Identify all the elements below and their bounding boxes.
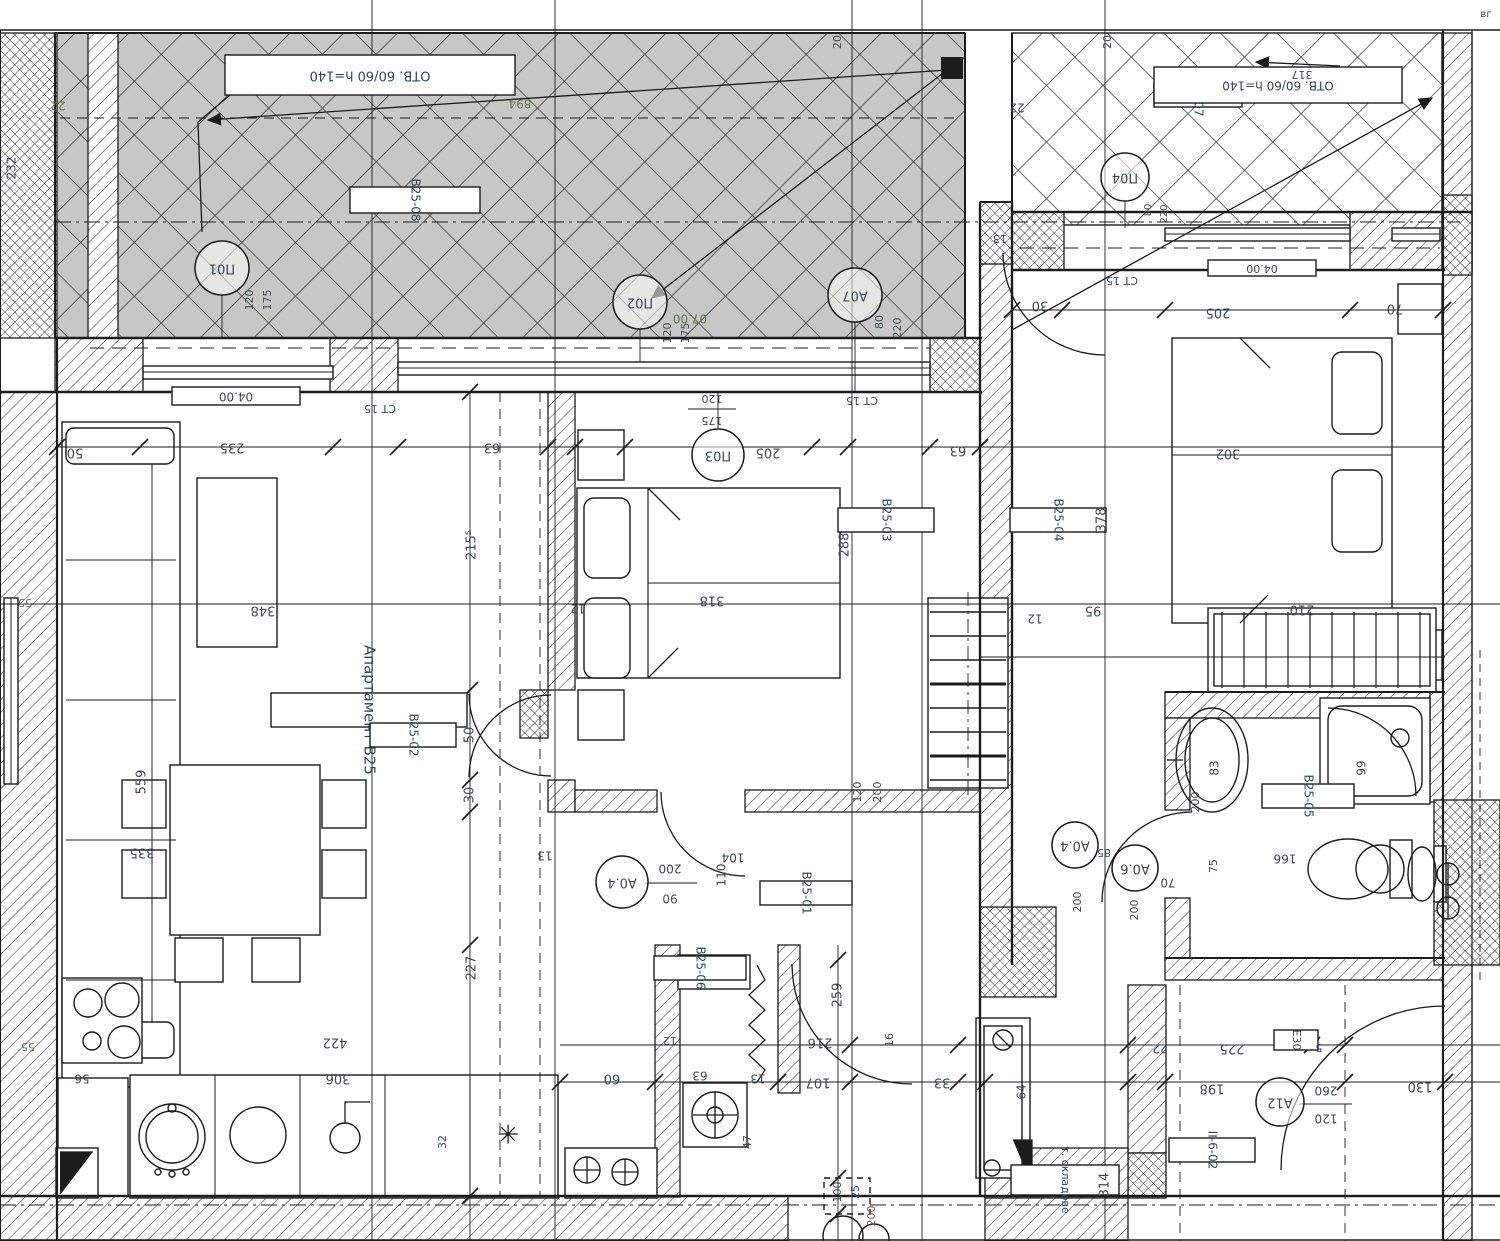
wall-hatch <box>778 945 800 1093</box>
dimension-text: 198 <box>1200 1081 1225 1096</box>
opening-tag-label: А0.4 <box>607 875 637 890</box>
dimension-label: 12 <box>570 602 585 616</box>
dimension-label: 13 <box>750 1072 765 1086</box>
furniture-or-window <box>175 938 223 982</box>
dimension-label: 120 <box>243 290 256 311</box>
dimension-label: 220 <box>1159 204 1170 223</box>
dimension-label: 422 <box>323 1035 348 1050</box>
dimension-label: 5 <box>1316 1041 1323 1054</box>
dimension-label: 13 <box>993 232 1007 245</box>
room-tag-label: ОТВ. 60/60 h=140 <box>1222 79 1334 93</box>
furniture-or-window <box>322 780 366 828</box>
opening-tag-text: А07 <box>842 288 867 303</box>
opening-tag-label: А0.4 <box>1060 838 1090 853</box>
furniture-or-window <box>1332 470 1382 552</box>
dimension-label: 198 <box>1200 1081 1225 1096</box>
wall-hatch <box>0 33 57 338</box>
room-tag-label: Е30 <box>1290 1030 1303 1051</box>
dimension-label: 107 <box>806 1075 831 1090</box>
dimension-label: 63 <box>484 440 501 455</box>
opening-tag-text: П03 <box>705 448 731 463</box>
dimension-text: 83 <box>1208 760 1222 775</box>
room-tag-label: В25-05 <box>1302 774 1316 817</box>
dimension-label: 306 <box>326 1071 351 1086</box>
dimension-text: 235 <box>220 440 245 455</box>
opening-tag-text: П04 <box>1112 170 1138 185</box>
dimension-label: 175 <box>261 290 274 311</box>
dimension-label: 200 <box>871 782 884 803</box>
dimension-label: 95 <box>1085 603 1102 618</box>
dimension-text: 75 <box>1207 859 1220 873</box>
dimension-text: 302 <box>1216 446 1241 461</box>
dimension-label: СТ 15 <box>846 394 878 407</box>
dimension-label: 166 <box>1274 852 1297 866</box>
dimension-label: 70 <box>1160 876 1175 890</box>
dimension-text: 13 <box>537 849 552 863</box>
dimension-label: 32 <box>436 1135 449 1149</box>
dimension-text: 210 <box>1290 602 1315 617</box>
dimension-label: 200 <box>1071 892 1084 913</box>
dimension-text: 99 <box>1355 760 1369 775</box>
opening-tag-label: А07 <box>842 288 867 303</box>
dimension-label: 216 <box>808 1035 833 1050</box>
dimension-text: 50 <box>463 727 478 744</box>
dimension-label: 64 <box>1015 1084 1029 1099</box>
wall-hatch <box>575 790 657 812</box>
opening-tag-label: П01 <box>209 261 235 276</box>
wall-hatch <box>548 392 575 690</box>
dimension-text: 200 <box>1128 900 1141 921</box>
furniture-or-window <box>584 498 630 578</box>
dimension-text: 55 <box>18 596 32 609</box>
dimension-text: 306 <box>326 1071 351 1086</box>
dimension-text: 200 <box>1189 792 1202 813</box>
floor-plan-canvas: П01П02П03А07П04А0.4А0.4А0.6А12Апартамент… <box>0 0 1500 1241</box>
dimension-label: 50 <box>463 727 478 744</box>
dimension-label: 75 <box>1207 859 1220 873</box>
dimension-text: 200 <box>1071 892 1084 913</box>
dimension-text: 120 <box>1315 1112 1338 1126</box>
dimension-text: 259 <box>831 983 846 1008</box>
dimension-text: 318 <box>700 593 725 608</box>
dimension-label: 30 <box>1032 298 1049 313</box>
floor-plan-page: П01П02П03А07П04А0.4А0.4А0.6А12Апартамент… <box>0 0 1500 1241</box>
dimension-text: 63 <box>692 1069 707 1083</box>
furniture-or-window <box>565 1148 657 1198</box>
dimension-label: СТ 15 <box>1106 274 1138 287</box>
dimension-label: 25 <box>849 1185 862 1199</box>
room-tag: ОТВ. 60/60 h=140 <box>1154 67 1402 103</box>
dimension-text: 60 <box>604 1071 621 1086</box>
dimension-label: 227 <box>465 956 480 981</box>
dimension-text: 12 <box>663 1034 677 1047</box>
dimension-text: 13 <box>750 1072 765 1086</box>
dimension-label: 200 <box>659 862 682 876</box>
dimension-text: 04.00 <box>1246 262 1278 275</box>
dimension-text: 70 <box>1387 301 1404 316</box>
furniture-or-window <box>322 850 366 898</box>
opening-tag-label: П04 <box>1112 170 1138 185</box>
dimension-label: 210 <box>1290 602 1315 617</box>
dimension-text: 120 <box>851 782 864 803</box>
dimension-label: вг <box>1480 9 1491 20</box>
dimension-text: 25 <box>849 1185 862 1199</box>
fixture-circle <box>1185 718 1239 802</box>
dimension-text: 12 <box>1027 612 1042 626</box>
dimension-text: 85 <box>1097 846 1111 859</box>
opening-tag-label: А0.6 <box>1120 861 1150 876</box>
wall-hatch <box>980 907 1056 997</box>
furniture-or-window <box>252 938 300 982</box>
room-tag: Е30 <box>1274 1030 1318 1051</box>
dimension-label: 30 <box>463 787 478 804</box>
plan-polyline <box>749 965 765 1082</box>
dimension-label: 894 <box>509 97 532 111</box>
dimension-label: 318 <box>700 593 725 608</box>
dimension-text: 120 <box>243 290 256 311</box>
dimension-label: 56 <box>74 1072 89 1086</box>
dimension-label: 235 <box>220 440 245 455</box>
dimension-label: 175 <box>679 323 692 344</box>
furniture-or-window <box>197 478 277 647</box>
dimension-text: 205 <box>1206 305 1231 320</box>
dimension-text: 20 <box>1101 35 1114 49</box>
dimension-text: 260 <box>1315 1084 1338 1098</box>
dimension-label: 205 <box>1206 305 1231 320</box>
wall-hatch <box>330 338 398 392</box>
dimension-text: 56 <box>74 1072 89 1086</box>
dimension-label: 110 <box>715 864 729 887</box>
solid-marker <box>941 57 963 79</box>
dimension-label: 12 <box>663 1034 677 1047</box>
dimension-label: 100 <box>831 1182 844 1203</box>
dimension-label: 288 <box>838 533 853 558</box>
dimension-text: 422 <box>323 1035 348 1050</box>
dimension-label: 99 <box>1355 760 1369 775</box>
dimension-text: 16 <box>883 1033 896 1047</box>
dimension-text: СТ 15 <box>846 394 878 407</box>
opening-tag-text: П02 <box>627 295 653 310</box>
dimension-text: 5 <box>1316 1041 1323 1054</box>
dimension-label: 317 <box>1292 68 1313 81</box>
dimension-text: СТ 15 <box>1106 274 1138 287</box>
dimension-label: 559 <box>135 770 150 795</box>
room-tag: В25-01 <box>760 871 852 914</box>
dimension-text: 107 <box>806 1075 831 1090</box>
dimension-label: 200 <box>1189 792 1202 813</box>
dimension-text: 166 <box>1274 852 1297 866</box>
dimension-text: 559 <box>135 770 150 795</box>
dimension-text: 200 <box>871 782 884 803</box>
wall-hatch <box>1165 958 1445 980</box>
dimension-text: 200 <box>659 862 682 876</box>
dimension-text: 04.00 <box>219 390 253 404</box>
dimension-label: 22 <box>1152 1042 1167 1056</box>
wall-hatch <box>1443 195 1472 275</box>
wall-hatch <box>548 780 575 812</box>
dimension-text: 175 <box>702 414 723 427</box>
dimension-label: ✳ <box>497 1121 519 1151</box>
room-tag: ОТВ. 60/60 h=140 <box>225 55 515 95</box>
dimension-label: 16 <box>883 1033 896 1047</box>
dimension-label: 232 <box>5 157 19 180</box>
dimension-text: 335 <box>130 845 155 860</box>
dimension-label: 120 <box>1315 1112 1338 1126</box>
room-tag-label: В25-04 <box>1052 498 1066 541</box>
furniture-or-window <box>578 690 624 740</box>
dimension-label: 104 <box>722 851 745 865</box>
wall-hatch <box>55 338 143 392</box>
dimension-label: 20 <box>831 35 844 49</box>
room-tag-label: В25-02 <box>407 713 421 756</box>
dimension-text: 22 <box>50 99 65 113</box>
wall-hatch <box>1128 985 1166 1153</box>
dimension-label: 33 <box>934 1075 951 1090</box>
furniture-or-window <box>1332 352 1382 434</box>
dimension-text: 30 <box>463 787 478 804</box>
dimension-text: 175 <box>261 290 274 311</box>
dimension-label: 130 <box>1408 1079 1433 1094</box>
dimension-label: 220 <box>891 318 904 339</box>
furniture-or-window <box>1398 284 1442 334</box>
dimension-label: 259 <box>831 983 846 1008</box>
dimension-text: 13 <box>993 232 1007 245</box>
furniture-or-window <box>130 1075 558 1198</box>
dimension-label: 215⁵ <box>465 530 480 560</box>
dimension-label: 04.00 <box>1208 260 1316 276</box>
dimension-text: 100 <box>831 1182 844 1203</box>
opening-tag-text: П01 <box>209 261 235 276</box>
dimension-text: СТ 15 <box>364 402 396 415</box>
terrace-area <box>1012 33 1442 225</box>
room-tag: В25-04 <box>1010 498 1106 541</box>
room-tag-label: ОТВ. 60/60 h=140 <box>310 68 431 83</box>
dimension-label: 348 <box>251 603 276 618</box>
furniture-or-window <box>1328 706 1422 796</box>
dimension-text: 232 <box>5 157 19 180</box>
dimension-label: 225 <box>1220 1041 1245 1056</box>
dimension-label: 83 <box>1208 760 1222 775</box>
dimension-text: 314 <box>1098 1173 1113 1198</box>
dimension-text: 33 <box>934 1075 951 1090</box>
dimension-text: 175 <box>679 323 692 344</box>
furniture-or-window <box>584 598 630 678</box>
dimension-label: 200 <box>865 1206 878 1227</box>
dimension-label: 90 <box>662 892 677 906</box>
dimension-text: 80 <box>873 315 886 329</box>
dimension-label: 205 <box>756 445 781 460</box>
dimension-text: вг <box>1480 9 1491 20</box>
room-tag-label: т. складове <box>1059 1146 1072 1214</box>
wall-hatch <box>1012 212 1064 270</box>
fixture-circle <box>823 1216 863 1241</box>
room-tag-label: Апартамент В25 <box>361 645 379 775</box>
opening-tag-text: А0.6 <box>1120 861 1150 876</box>
dimension-text: 70 <box>1160 876 1175 890</box>
dimension-label: 378 <box>1095 508 1110 533</box>
dimension-label: 13 <box>537 849 552 863</box>
dimension-text: 120 <box>702 392 723 405</box>
dimension-text: 47 <box>741 1135 754 1149</box>
dimension-label: 120 <box>851 782 864 803</box>
dimension-label: 55 <box>18 596 32 609</box>
room-tag-label: В25-03 <box>880 498 894 541</box>
dimension-label: 20 <box>1101 35 1114 49</box>
opening-tag-label: П02 <box>627 295 653 310</box>
room-tag-label: В25-08 <box>409 178 423 221</box>
dimension-label: 50 <box>67 445 84 460</box>
dimension-text: 90 <box>662 892 677 906</box>
dimension-label: 04.00 <box>172 387 300 405</box>
dimension-text: 55 <box>21 1040 35 1053</box>
dimension-text: 220 <box>1159 204 1170 223</box>
dimension-text: 22 <box>1009 101 1024 115</box>
dimension-text: 200 <box>865 1206 878 1227</box>
wall-hatch <box>0 1196 788 1241</box>
dimension-label: 314 <box>1098 1173 1113 1198</box>
dimension-text: 50 <box>67 445 84 460</box>
dimension-text: 225 <box>1220 1041 1245 1056</box>
dimension-text: 12 <box>570 602 585 616</box>
dimension-label: 80 <box>1143 204 1154 217</box>
dimension-text: 288 <box>838 533 853 558</box>
dimension-label: 302 <box>1216 446 1241 461</box>
fixture-circle <box>1308 839 1388 899</box>
dimension-text: 348 <box>251 603 276 618</box>
dimension-label: 12 <box>1027 612 1042 626</box>
dimension-label: 63 <box>692 1069 707 1083</box>
dimension-text: 22 <box>1152 1042 1167 1056</box>
dimension-text: 317 <box>1292 68 1313 81</box>
wall-hatch <box>930 338 982 392</box>
furniture-or-window <box>170 765 320 935</box>
dimension-text: 95 <box>1085 603 1102 618</box>
room-tag-label: В25-06 <box>694 946 708 989</box>
dimension-text: 63 <box>484 440 501 455</box>
dimension-label: 47 <box>741 1135 754 1149</box>
opening-tag-text: А0.4 <box>607 875 637 890</box>
dimension-text: 110 <box>715 864 729 887</box>
dimension-text: 227 <box>465 956 480 981</box>
opening-tag-label: А12 <box>1267 1095 1292 1110</box>
room-tag: ІІ-6-02 <box>1169 1131 1255 1170</box>
dimension-label: 80 <box>873 315 886 329</box>
wall-hatch <box>985 1196 1128 1241</box>
dimension-text: 63 <box>950 443 967 458</box>
dimension-text: 80 <box>1143 204 1154 217</box>
room-tag-label: В25-01 <box>800 871 814 914</box>
dimension-text: 64 <box>1015 1084 1029 1099</box>
dimension-label: 200 <box>1128 900 1141 921</box>
dimension-label: 70 <box>1387 301 1404 316</box>
dimension-label: 63 <box>950 443 967 458</box>
wall-hatch <box>655 945 680 1197</box>
room-tag-label: ІІ-6-02 <box>1206 1131 1220 1170</box>
dimension-label: СТ 15 <box>364 402 396 415</box>
dimension-text: 30 <box>1032 298 1049 313</box>
dimension-label: 60 <box>604 1071 621 1086</box>
dimension-label: 175 <box>702 414 723 427</box>
dimension-label: 85 <box>1097 846 1111 859</box>
wall-hatch <box>88 33 118 338</box>
dimension-text: ✳ <box>497 1121 519 1151</box>
dimension-text: 216 <box>808 1035 833 1050</box>
dimension-label: 260 <box>1315 1084 1338 1098</box>
opening-tag-text: А0.4 <box>1060 838 1090 853</box>
dimension-text: 378 <box>1095 508 1110 533</box>
opening-tag-text: А12 <box>1267 1095 1292 1110</box>
wall-hatch <box>1128 1153 1166 1198</box>
wall-hatch <box>0 392 57 1196</box>
dimension-label: 335 <box>130 845 155 860</box>
dimension-text: 130 <box>1408 1079 1433 1094</box>
dimension-text: 205 <box>756 445 781 460</box>
dimension-text: 104 <box>722 851 745 865</box>
dimension-label: 22 <box>1009 101 1024 115</box>
dimension-label: 120 <box>661 323 674 344</box>
dimension-text: 215⁵ <box>465 530 480 560</box>
room-tag: Апартамент В25 <box>271 645 467 775</box>
dimension-text: 120 <box>661 323 674 344</box>
dimension-text: 220 <box>891 318 904 339</box>
wall-hatch <box>1165 898 1190 960</box>
dimension-label: 22 <box>50 99 65 113</box>
dimension-text: 20 <box>831 35 844 49</box>
dimension-label: 120 <box>702 392 723 405</box>
dimension-text: 32 <box>436 1135 449 1149</box>
dimension-text: 894 <box>509 97 532 111</box>
dimension-label: 55 <box>21 1040 35 1053</box>
furniture-or-window <box>62 978 142 1063</box>
opening-tag-label: П03 <box>705 448 731 463</box>
